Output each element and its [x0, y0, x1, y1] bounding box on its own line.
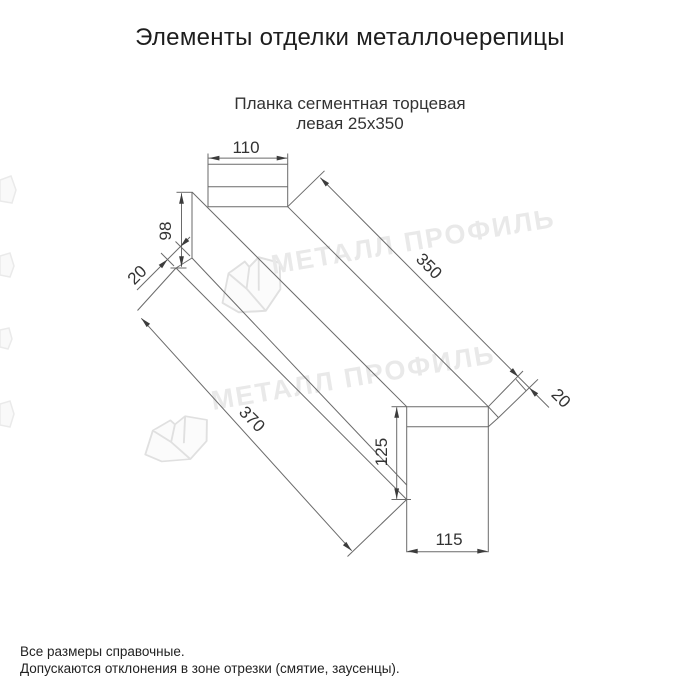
dim-side-fold: 20 [124, 262, 151, 289]
dim-flange-bottom-height: 125 [372, 438, 391, 466]
footnotes: Все размеры справочные. Допускаются откл… [20, 643, 400, 677]
watermark-edge-fragments [0, 176, 16, 427]
watermark-text-upper: МЕТАЛЛ ПРОФИЛЬ [269, 203, 557, 280]
watermark-text-lower: МЕТАЛЛ ПРОФИЛЬ [209, 339, 497, 416]
dim-flange-bottom-width: 115 [435, 530, 462, 549]
dim-flange-top-width: 110 [232, 138, 259, 157]
watermark-logo-lower [140, 413, 213, 467]
technical-drawing-page: Элементы отделки металлочерепицы Планка … [0, 0, 700, 700]
dimension-labels: 110 98 20 350 20 370 125 115 [124, 138, 575, 549]
dim-side-height: 98 [156, 222, 175, 241]
footnote-line1: Все размеры справочные. [20, 643, 400, 660]
dim-end-fold: 20 [547, 385, 574, 412]
drawing-canvas: МЕТАЛЛ ПРОФИЛЬ МЕТАЛЛ ПРОФИЛЬ [0, 0, 700, 700]
footnote-line2: Допускаются отклонения в зоне отрезки (с… [20, 660, 400, 677]
